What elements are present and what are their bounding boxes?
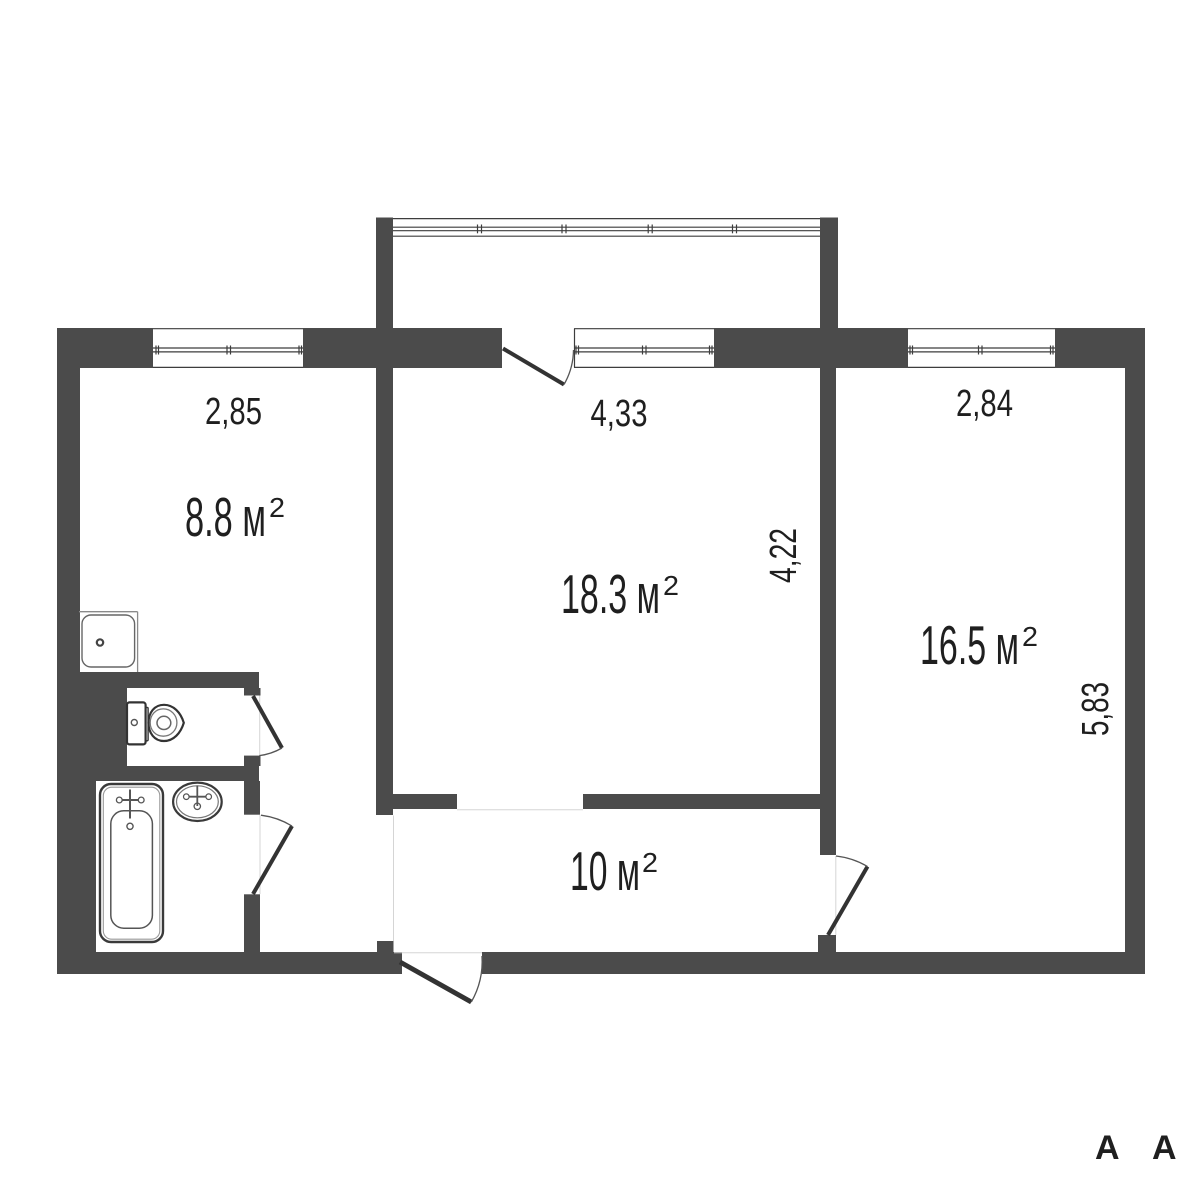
svg-text:2: 2 <box>663 570 679 601</box>
svg-text:5,83: 5,83 <box>1075 682 1117 736</box>
svg-text:8.8 м: 8.8 м <box>185 486 266 548</box>
svg-text:10 м: 10 м <box>570 840 640 902</box>
svg-text:2,84: 2,84 <box>956 383 1013 425</box>
svg-text:A: A <box>1152 1129 1177 1167</box>
svg-text:4,22: 4,22 <box>763 528 805 583</box>
svg-text:2: 2 <box>642 847 658 878</box>
svg-text:2: 2 <box>1022 621 1038 652</box>
svg-text:4,33: 4,33 <box>591 393 648 435</box>
svg-text:A: A <box>1095 1129 1120 1167</box>
svg-text:18.3 м: 18.3 м <box>561 563 660 625</box>
svg-text:2,85: 2,85 <box>205 391 262 433</box>
svg-text:16.5 м: 16.5 м <box>920 614 1019 676</box>
svg-text:2: 2 <box>269 492 285 523</box>
